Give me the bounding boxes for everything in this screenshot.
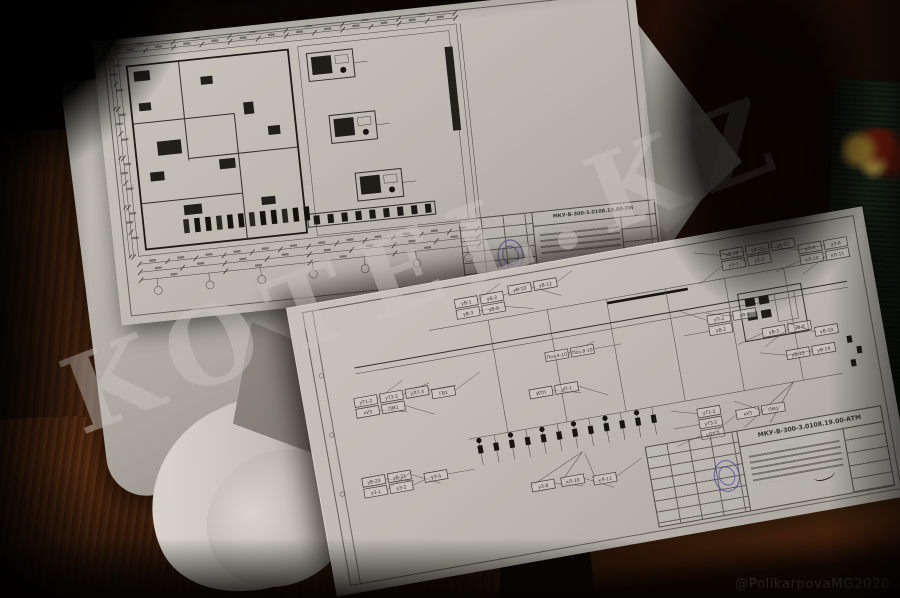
photo-of-blueprints-on-desk: щностью танция нического ние [0, 0, 900, 598]
stamp-text-lines [748, 436, 845, 485]
stamp-subcolumn [842, 421, 894, 492]
book-gold-ornament [838, 126, 900, 183]
photo-credit-watermark: @PolikarpovaMG2020 [735, 576, 890, 592]
blue-ink-stamp [711, 458, 742, 494]
